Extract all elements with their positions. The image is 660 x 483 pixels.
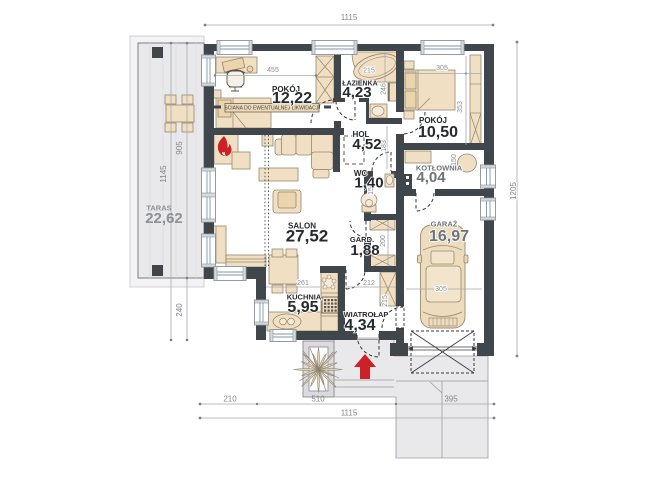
svg-text:353: 353 bbox=[457, 101, 464, 113]
svg-text:905: 905 bbox=[175, 141, 184, 155]
svg-text:305: 305 bbox=[436, 65, 448, 72]
svg-text:215: 215 bbox=[363, 68, 375, 75]
svg-text:200: 200 bbox=[380, 235, 387, 247]
svg-text:1205: 1205 bbox=[509, 182, 518, 200]
svg-text:12,22: 12,22 bbox=[272, 90, 312, 107]
svg-text:240: 240 bbox=[175, 303, 184, 317]
svg-text:1,40: 1,40 bbox=[354, 175, 383, 192]
svg-text:183: 183 bbox=[381, 140, 388, 152]
svg-text:215: 215 bbox=[382, 295, 389, 307]
svg-text:10,50: 10,50 bbox=[418, 124, 458, 141]
svg-text:305: 305 bbox=[435, 286, 447, 293]
svg-text:210: 210 bbox=[223, 395, 237, 404]
svg-text:1145: 1145 bbox=[159, 165, 168, 183]
svg-text:1115: 1115 bbox=[341, 409, 358, 418]
svg-text:395: 395 bbox=[444, 395, 458, 404]
svg-text:4,52: 4,52 bbox=[352, 136, 381, 153]
svg-text:16,97: 16,97 bbox=[429, 228, 469, 245]
svg-text:22,62: 22,62 bbox=[145, 210, 183, 227]
svg-text:4,23: 4,23 bbox=[342, 84, 371, 101]
svg-text:246: 246 bbox=[381, 83, 388, 95]
svg-text:261: 261 bbox=[297, 280, 309, 287]
svg-text:5,95: 5,95 bbox=[287, 299, 318, 316]
svg-text:1,88: 1,88 bbox=[350, 242, 379, 259]
svg-text:4,04: 4,04 bbox=[416, 169, 446, 186]
svg-text:455: 455 bbox=[267, 67, 279, 74]
svg-text:1115: 1115 bbox=[341, 13, 358, 22]
svg-text:4,34: 4,34 bbox=[344, 317, 375, 334]
svg-text:510: 510 bbox=[311, 395, 325, 404]
svg-text:212: 212 bbox=[363, 280, 375, 287]
svg-text:27,52: 27,52 bbox=[286, 227, 329, 246]
